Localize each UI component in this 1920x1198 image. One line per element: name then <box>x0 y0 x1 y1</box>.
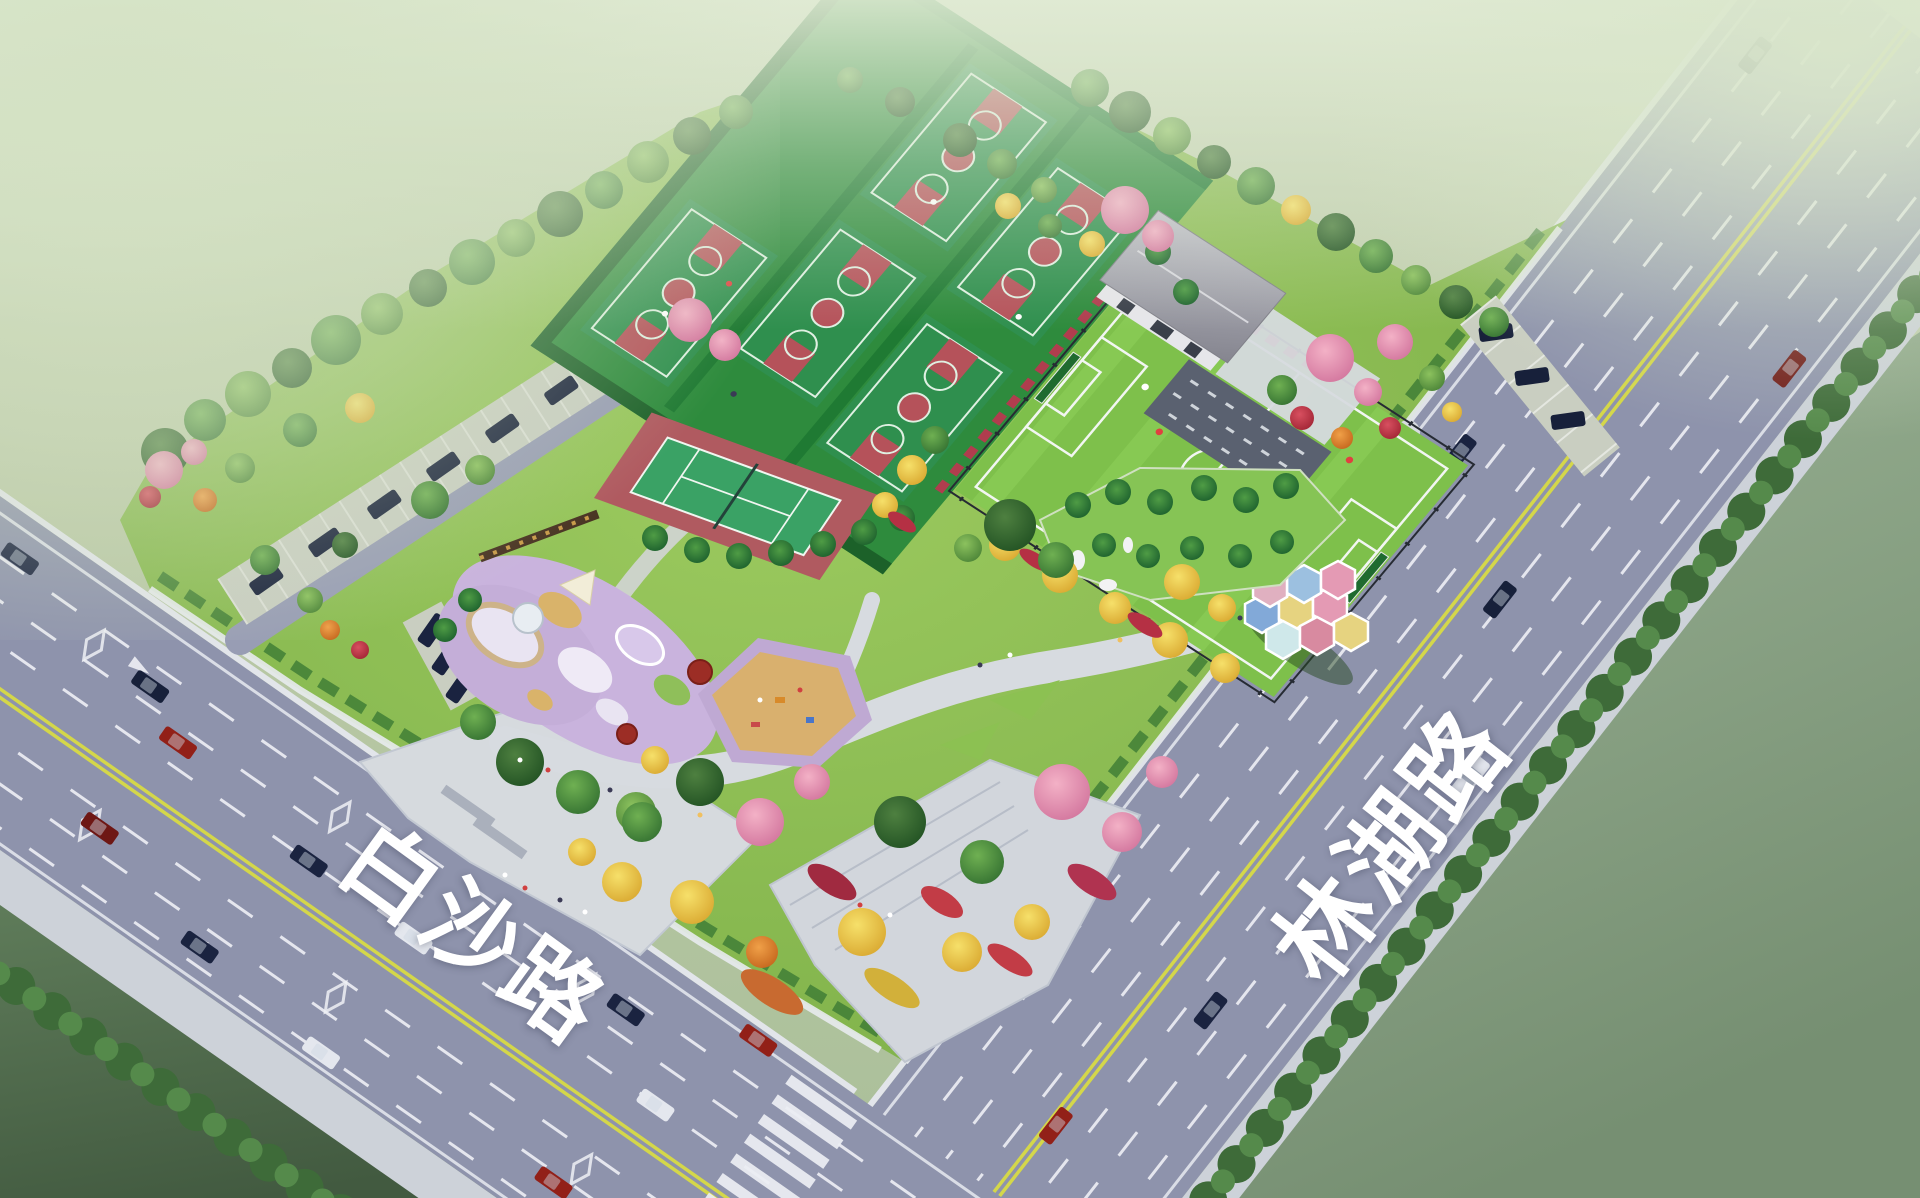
haze-top-left <box>0 0 780 640</box>
ladybug-dome <box>617 724 637 744</box>
haze-top-right <box>1340 0 1920 440</box>
park-aerial-rendering: 白沙路 林湖路 <box>0 0 1920 1198</box>
ladybug-dome <box>688 660 712 684</box>
rendering-canvas <box>0 0 1920 1198</box>
